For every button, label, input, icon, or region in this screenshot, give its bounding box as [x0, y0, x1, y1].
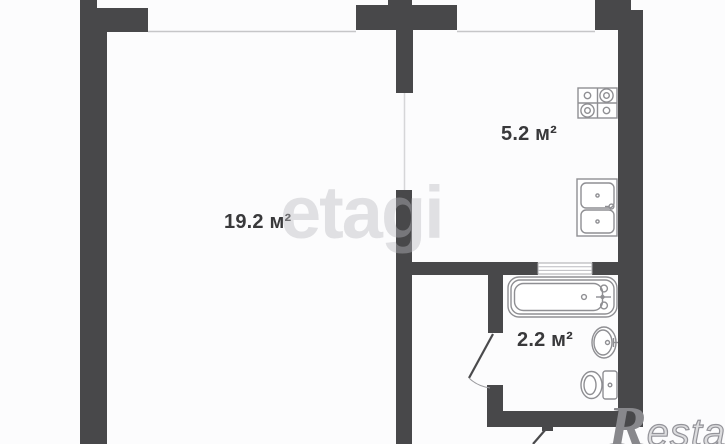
wall-bath-left-upper: [488, 275, 503, 333]
bathroom-door-leaf: [469, 334, 493, 378]
washbasin-icon: [592, 327, 618, 358]
wall-kitchen-bath-left: [396, 262, 538, 275]
restate-logo-text: estate: [647, 411, 725, 444]
bath-window: [538, 263, 592, 274]
wall-stub-top-right: [595, 0, 631, 11]
bathroom-door-arc: [469, 378, 490, 388]
wall-right: [618, 28, 643, 427]
kitchen-area-label: 5.2 м²: [501, 123, 557, 146]
stove-icon: [578, 88, 617, 118]
entry-door-leaf: [533, 429, 546, 444]
wall-top-middle: [356, 5, 457, 30]
wall-t-stem: [396, 28, 413, 93]
wall-stub-top-middle: [388, 0, 412, 6]
bathtub-icon: [508, 277, 617, 317]
restate-logo-initial: R: [608, 394, 647, 444]
wall-corner-top-right: [595, 10, 643, 30]
wall-corner-top-left: [80, 8, 148, 32]
floor-plan-canvas: 19.2 м² 5.2 м² 2.2 м² etagi Restate: [0, 0, 725, 444]
kitchen-sink-icon: [577, 179, 617, 236]
wall-left: [80, 30, 107, 444]
wall-kitchen-bath-right: [592, 262, 643, 275]
bathroom-area-label: 2.2 м²: [517, 329, 573, 352]
restate-logo-watermark: Restate: [608, 398, 725, 444]
etagi-watermark: etagi: [280, 176, 443, 250]
